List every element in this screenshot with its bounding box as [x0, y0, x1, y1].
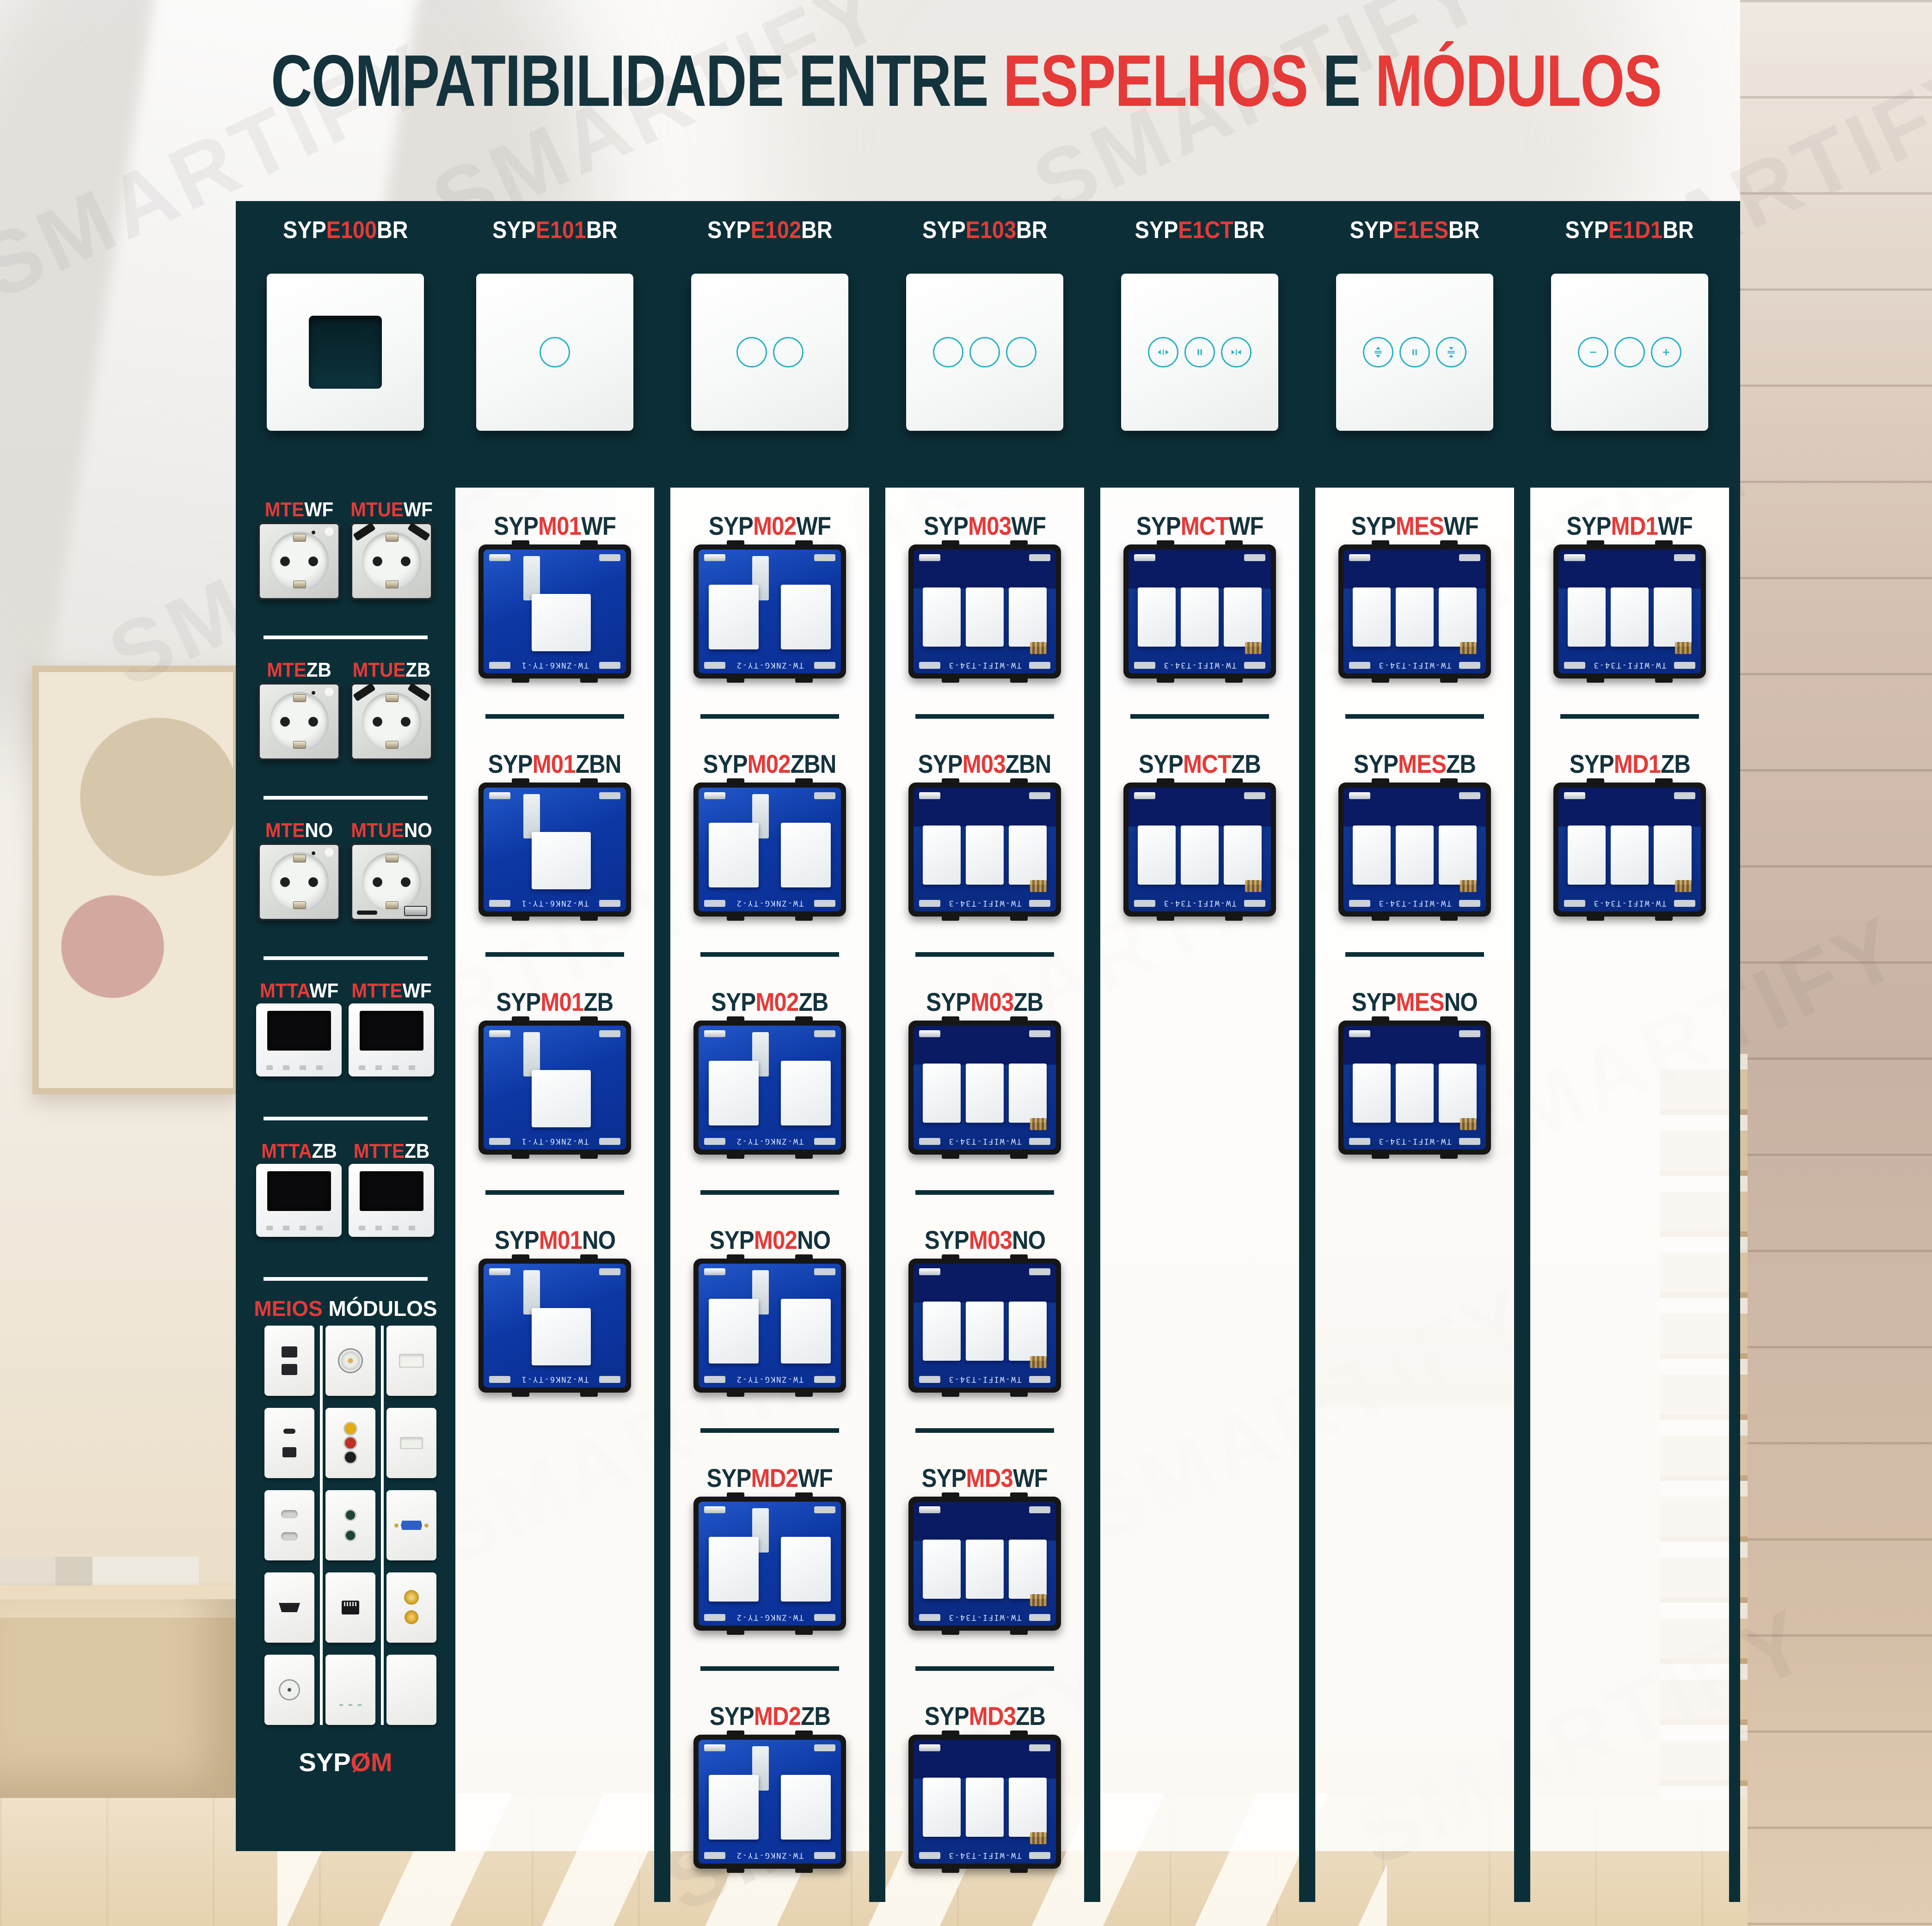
row-divider: [485, 714, 624, 719]
thermostat-image: [349, 1164, 434, 1237]
module-row: SYPMESWF TW-WIFI-T34-3: [1315, 511, 1514, 679]
module-code: MTTAZB: [257, 1140, 342, 1163]
button-pad: [781, 1537, 831, 1602]
module-row: SYPMD1WF TW-WIFI-T34-3: [1530, 511, 1729, 679]
hdmi-icon: [279, 1603, 300, 1612]
blank-port-icon: [400, 1437, 423, 1449]
meios-tile: [325, 1655, 375, 1725]
button-pad: [1009, 1064, 1047, 1123]
header-cell-sype101br: SYPE101BR: [453, 216, 656, 431]
column-separator: [869, 488, 885, 1902]
socket-2pin-icon: [281, 1510, 298, 1541]
module-image: TW-ZNK6-TY-1: [478, 1259, 631, 1393]
module-code: SYPM03ZBN: [918, 749, 1051, 779]
table-right-border: [1729, 488, 1740, 1902]
meios-tile: [264, 1572, 314, 1643]
pcb-print: TW-WIFI-T34-3: [914, 1137, 1056, 1146]
row-divider: [915, 1190, 1054, 1195]
module-row: SYPM02WF TW-ZNKG-TY-2: [670, 511, 869, 679]
pcb-print: TW-WIFI-T34-3: [1129, 660, 1271, 670]
clip-decoration: [489, 1268, 510, 1275]
meios-grid-line: [320, 1326, 323, 1725]
button-pad: [1654, 587, 1692, 647]
clip-decoration: [704, 1268, 725, 1275]
clip-decoration: [704, 1744, 725, 1751]
sideboard-top-photo: [0, 1585, 250, 1599]
socket-usb-image: [350, 522, 433, 600]
touch-circle-icon: [969, 337, 1000, 367]
column-separator: [654, 488, 670, 1902]
clip-decoration: [1349, 1030, 1370, 1037]
poster-canvas: SMARTIFY SMARTIFY SMARTIFY SMARTIFY SMAR…: [0, 0, 1932, 1926]
faceplate-image: [906, 274, 1063, 431]
shutter-close-icon: [1436, 337, 1466, 367]
title-part-red: MÓDULOS: [1375, 40, 1661, 122]
pcb-print: TW-WIFI-T34-3: [914, 1613, 1056, 1622]
row-divider: [915, 1428, 1054, 1433]
pcb-print: TW-WIFI-T34-3: [914, 899, 1056, 908]
button-pad: [1224, 825, 1262, 885]
faceplate-image: [691, 274, 848, 431]
module-code: SYPMCTWF: [1136, 511, 1263, 541]
button-pad: [709, 1775, 759, 1840]
clip-decoration: [1349, 792, 1370, 799]
module-image: TW-ZNKG-TY-2: [693, 1497, 846, 1631]
module-image: TW-WIFI-T34-3: [908, 783, 1061, 917]
button-pad: [923, 1302, 961, 1361]
meios-tile: [264, 1490, 314, 1560]
module-row: SYPMCTWF TW-WIFI-T34-3: [1100, 511, 1299, 679]
sypom-label: SYPØM: [236, 1747, 455, 1777]
title-part-dark: E: [1307, 40, 1375, 122]
row-divider: [1560, 714, 1699, 719]
module-row: SYPMCTZB TW-WIFI-T34-3: [1100, 749, 1299, 917]
pcb-print: TW-ZNK6-TY-1: [484, 1375, 626, 1384]
touch-circle-icon: [1006, 337, 1037, 367]
sat-coax-dual-icon: [404, 1590, 419, 1605]
clip-decoration: [489, 1030, 510, 1037]
module-image: TW-ZNKG-TY-2: [693, 1021, 846, 1155]
module-image: TW-ZNK6-TY-1: [478, 544, 631, 679]
button-pad: [532, 832, 591, 889]
module-code: SYPM02WF: [709, 511, 831, 541]
tv-coax-icon: [279, 1679, 300, 1700]
button-pad: [709, 823, 759, 887]
mirror-code: SYPE1D1BR: [1565, 216, 1694, 244]
module-row: SYPMD1ZB TW-WIFI-T34-3: [1530, 749, 1729, 917]
row-divider: [700, 714, 839, 719]
meios-tile: [325, 1326, 375, 1396]
module-row: SYPMD3WF TW-WIFI-T34-3: [885, 1463, 1084, 1631]
module-image: TW-WIFI-T34-3: [908, 1735, 1061, 1869]
button-pad: [1654, 825, 1692, 885]
column-bg-mct: [1100, 488, 1299, 1851]
module-row: SYPMD3ZB TW-WIFI-T34-3: [885, 1701, 1084, 1869]
pcb-print: TW-ZNKG-TY-2: [699, 1851, 841, 1860]
socket-usb-image: [350, 683, 433, 760]
curtain-close-icon: [1221, 337, 1251, 367]
pcb-print: TW-ZNKG-TY-2: [699, 1137, 841, 1146]
meios-modulos-heading: MEIOS MÓDULOS: [236, 1296, 455, 1321]
button-pad: [1396, 825, 1434, 885]
switch-blank-icon: [337, 1674, 364, 1706]
dimmer-minus-icon: [1578, 337, 1608, 367]
rca-av-icon: [345, 1423, 356, 1434]
module-image: TW-WIFI-T34-3: [1553, 783, 1706, 917]
module-code: SYPM02ZB: [711, 987, 828, 1017]
open-frame-icon: [309, 316, 382, 389]
module-image: TW-WIFI-T34-3: [908, 544, 1061, 679]
module-code: SYPM03NO: [924, 1225, 1045, 1255]
module-image: TW-WIFI-T34-3: [908, 1497, 1061, 1631]
button-pad: [781, 1061, 831, 1125]
module-image: TW-WIFI-T34-3: [1338, 783, 1491, 917]
module-row: SYPM03ZB TW-WIFI-T34-3: [885, 987, 1084, 1155]
module-code: SYPM01WF: [494, 511, 616, 541]
meios-tile: [264, 1326, 314, 1396]
button-pad: [923, 825, 961, 885]
meios-tile: [325, 1572, 375, 1643]
mirror-code: SYPE102BR: [707, 216, 833, 244]
module-row: SYPM02ZB TW-ZNKG-TY-2: [670, 987, 869, 1155]
socket-image: [258, 843, 340, 921]
clip-decoration: [704, 1030, 725, 1037]
column-bg-m01: [455, 488, 654, 1851]
pcb-print: TW-ZNKG-TY-2: [699, 899, 841, 908]
button-pad: [1009, 1302, 1047, 1361]
column-separator: [1299, 488, 1315, 1902]
module-image: TW-ZNKG-TY-2: [693, 783, 846, 917]
clip-decoration: [919, 1268, 940, 1275]
button-pad: [781, 585, 831, 649]
module-image: TW-WIFI-T34-3: [908, 1259, 1061, 1393]
sidebar-divider: [264, 796, 428, 800]
module-code: MTENO: [257, 819, 342, 842]
meios-tile: [386, 1490, 436, 1560]
module-image: TW-WIFI-T34-3: [1123, 783, 1276, 917]
faceplate-image: [1121, 274, 1278, 431]
button-pad: [532, 594, 591, 651]
column-bg-md1: [1530, 488, 1729, 1851]
blank-port-icon: [399, 1354, 424, 1368]
button-pad: [1181, 825, 1219, 885]
pcb-print: TW-ZNKG-TY-2: [699, 660, 841, 670]
pcb-print: TW-WIFI-T34-3: [914, 1851, 1056, 1860]
books-photo: [0, 1557, 199, 1585]
curtain-open-icon: [1148, 337, 1178, 367]
module-code: SYPMESNO: [1352, 987, 1478, 1017]
module-code: SYPMD2ZB: [709, 1701, 830, 1731]
module-image: TW-ZNKG-TY-2: [693, 1735, 846, 1869]
row-divider: [700, 952, 839, 957]
row-divider: [1345, 952, 1484, 957]
faceplate-image: [267, 274, 424, 431]
thermostat-image: [349, 1003, 434, 1076]
module-row: SYPMESZB TW-WIFI-T34-3: [1315, 749, 1514, 917]
module-code: SYPMESZB: [1354, 749, 1476, 779]
button-pad: [966, 1778, 1004, 1837]
module-code: SYPMD3ZB: [924, 1701, 1045, 1731]
module-code: SYPM03WF: [924, 511, 1046, 541]
button-pad: [966, 1064, 1004, 1123]
meios-tile: [386, 1408, 436, 1478]
button-pad: [923, 587, 961, 647]
module-image: TW-WIFI-T34-3: [1338, 544, 1491, 679]
clip-decoration: [704, 554, 725, 561]
module-code: SYPMD2WF: [707, 1463, 833, 1493]
module-code: SYPMD1ZB: [1569, 749, 1690, 779]
meios-tile: [325, 1490, 375, 1560]
module-row: SYPM02ZBN TW-ZNKG-TY-2: [670, 749, 869, 917]
clip-decoration: [1349, 554, 1370, 561]
module-code: MTTEWF: [349, 979, 434, 1003]
button-pad: [1568, 587, 1606, 647]
button-pad: [966, 1540, 1004, 1599]
column-bg-mes: [1315, 488, 1514, 1851]
button-pad: [966, 587, 1004, 647]
faceplate-image: [1336, 274, 1493, 431]
module-code: MTUEZB: [349, 659, 434, 682]
module-image: TW-ZNKG-TY-2: [693, 1259, 846, 1393]
module-image: TW-WIFI-T34-3: [908, 1021, 1061, 1155]
header-cell-sype103br: SYPE103BR: [883, 216, 1086, 431]
module-code: MTUENO: [349, 819, 434, 842]
module-code: SYPM01ZB: [496, 987, 613, 1017]
touch-circle-icon: [933, 337, 963, 367]
faceplate-image: [476, 274, 633, 431]
module-image: TW-ZNKG-TY-2: [693, 544, 846, 679]
blank-icon: [409, 1688, 414, 1692]
page-title: COMPATIBILIDADE ENTRE ESPELHOS E MÓDULOS: [0, 39, 1932, 123]
rj45-icon: [342, 1601, 359, 1614]
module-code: MTEWF: [257, 498, 342, 521]
meios-tile: [386, 1326, 436, 1396]
touch-circle-icon: [1614, 337, 1645, 367]
mirror-code: SYPE1ESBR: [1350, 216, 1480, 244]
meios-tile: [325, 1408, 375, 1478]
button-pad: [1138, 587, 1176, 647]
button-pad: [1009, 587, 1047, 647]
sidebar-divider: [264, 1277, 428, 1281]
mirror-code: SYPE101BR: [492, 216, 618, 244]
module-code: MTTAWF: [257, 979, 342, 1003]
module-code: MTTEZB: [349, 1140, 434, 1163]
clip-decoration: [1564, 792, 1585, 799]
module-image: TW-WIFI-T34-3: [1553, 544, 1706, 679]
button-pad: [1009, 1540, 1047, 1599]
module-code: SYPMCTZB: [1139, 749, 1261, 779]
button-pad: [709, 1537, 759, 1602]
touch-circle-icon: [736, 337, 767, 367]
sidebar-divider: [264, 1117, 428, 1120]
thermostat-image: [256, 1164, 342, 1237]
button-pad: [923, 1540, 961, 1599]
row-divider: [700, 1428, 839, 1433]
pcb-print: TW-ZNK6-TY-1: [484, 660, 626, 670]
header-cell-sype100br: SYPE100BR: [244, 216, 447, 431]
module-code: SYPM01ZBN: [488, 749, 621, 779]
button-pad: [1568, 825, 1606, 885]
module-image: TW-WIFI-T34-3: [1123, 544, 1276, 679]
audio-jack-dual-icon: [346, 1510, 355, 1520]
button-pad: [709, 585, 759, 649]
mirror-code: SYPE100BR: [283, 216, 408, 244]
button-pad: [1439, 825, 1477, 885]
pcb-print: TW-ZNK6-TY-1: [484, 1137, 626, 1146]
pcb-print: TW-WIFI-T34-3: [1558, 660, 1701, 670]
title-part-red: ESPELHOS: [1003, 40, 1308, 122]
meios-tile: [386, 1655, 436, 1725]
clip-decoration: [1134, 554, 1155, 561]
column-separator: [1084, 488, 1100, 1902]
picture-frame-photo: [32, 666, 239, 1094]
module-row: SYPM01ZBN TW-ZNK6-TY-1: [455, 749, 654, 917]
clip-decoration: [919, 554, 940, 561]
touch-circle-icon: [540, 337, 570, 367]
socket-usb-image: [350, 843, 433, 921]
usb-c-and-a-icon: [282, 1429, 296, 1457]
button-pad: [1353, 825, 1391, 885]
clip-decoration: [1564, 554, 1585, 561]
module-code: SYPM02ZBN: [703, 749, 836, 779]
mirror-code: SYPE1CTBR: [1135, 216, 1265, 244]
module-row: SYPM01ZB TW-ZNK6-TY-1: [455, 987, 654, 1155]
module-code: SYPM02NO: [709, 1225, 830, 1255]
module-row: SYPM03NO TW-WIFI-T34-3: [885, 1225, 1084, 1393]
module-code: SYPM01NO: [494, 1225, 615, 1255]
header-cell-sype1ctbr: SYPE1CTBR: [1098, 216, 1301, 431]
socket-image: [258, 522, 340, 600]
column-bg-m02: [670, 488, 869, 1851]
button-pad: [1439, 587, 1477, 647]
column-separator: [1514, 488, 1530, 1902]
button-pad: [923, 1064, 961, 1123]
mirror-code: SYPE103BR: [922, 216, 1048, 244]
button-pad: [781, 1299, 831, 1363]
button-pad: [781, 823, 831, 887]
button-pad: [781, 1775, 831, 1840]
module-code: SYPM03ZB: [926, 987, 1043, 1017]
socket-image: [258, 683, 340, 760]
column-bg-m03: [885, 488, 1084, 1851]
meios-tile: [264, 1408, 314, 1478]
button-pad: [532, 1308, 591, 1365]
clip-decoration: [919, 1744, 940, 1751]
button-pad: [1181, 587, 1219, 647]
vga-icon: [394, 1521, 429, 1530]
module-image: TW-WIFI-T34-3: [1338, 1021, 1491, 1155]
row-divider: [915, 952, 1054, 957]
meios-tile: [386, 1572, 436, 1643]
row-divider: [915, 1666, 1054, 1671]
button-pad: [1009, 825, 1047, 885]
button-pad: [1138, 825, 1176, 885]
sidebar-divider: [264, 636, 428, 639]
row-divider: [915, 714, 1054, 719]
button-pad: [1439, 1064, 1477, 1123]
pcb-print: TW-WIFI-T34-3: [1343, 899, 1486, 908]
module-row: SYPM01NO TW-ZNK6-TY-1: [455, 1225, 654, 1393]
button-pad: [1396, 587, 1434, 647]
module-code: SYPMESWF: [1351, 511, 1478, 541]
module-code: SYPMD1WF: [1567, 511, 1693, 541]
button-pad: [1353, 587, 1391, 647]
module-code: MTEZB: [257, 659, 342, 682]
row-divider: [1345, 714, 1484, 719]
row-divider: [1130, 714, 1269, 719]
header-cell-sype102br: SYPE102BR: [668, 216, 871, 431]
clip-decoration: [704, 1506, 725, 1513]
header-cell-sype1esbr: SYPE1ESBR: [1313, 216, 1516, 431]
thermostat-image: [256, 1003, 342, 1076]
sidebar-divider: [264, 956, 428, 960]
pcb-print: TW-WIFI-T34-3: [914, 1375, 1056, 1384]
button-pad: [1396, 1064, 1434, 1123]
clip-decoration: [489, 792, 510, 799]
module-row: SYPM03ZBN TW-WIFI-T34-3: [885, 749, 1084, 917]
module-row: SYPM01WF TW-ZNK6-TY-1: [455, 511, 654, 679]
row-divider: [485, 1190, 624, 1195]
module-row: SYPM02NO TW-ZNKG-TY-2: [670, 1225, 869, 1393]
row-divider: [700, 1666, 839, 1671]
row-divider: [700, 1190, 839, 1195]
module-image: TW-ZNK6-TY-1: [478, 783, 631, 917]
meios-tile: [264, 1655, 314, 1725]
clip-decoration: [919, 792, 940, 799]
clip-decoration: [1134, 792, 1155, 799]
pcb-print: TW-ZNKG-TY-2: [699, 1613, 841, 1622]
button-pad: [1009, 1778, 1047, 1837]
usb-dual-icon: [282, 1346, 297, 1357]
pcb-print: TW-WIFI-T34-3: [1129, 899, 1271, 908]
button-pad: [1611, 825, 1649, 885]
pcb-print: TW-ZNK6-TY-1: [484, 899, 626, 908]
module-row: SYPMESNO TW-WIFI-T34-3: [1315, 987, 1514, 1155]
touch-circle-icon: [773, 337, 803, 367]
shutter-open-icon: [1363, 337, 1393, 367]
pause-icon: [1184, 337, 1215, 367]
pcb-print: TW-ZNKG-TY-2: [699, 1375, 841, 1384]
header-cell-sype1d1br: SYPE1D1BR: [1528, 216, 1731, 431]
pcb-print: TW-WIFI-T34-3: [914, 660, 1056, 670]
faceplate-image: [1551, 274, 1708, 431]
button-pad: [1611, 587, 1649, 647]
pause-icon: [1399, 337, 1430, 367]
clip-decoration: [919, 1030, 940, 1037]
button-pad: [966, 1302, 1004, 1361]
dimmer-plus-icon: [1651, 337, 1681, 367]
module-code: SYPMD3WF: [922, 1463, 1048, 1493]
clip-decoration: [704, 792, 725, 799]
button-pad: [709, 1061, 759, 1125]
pcb-print: TW-WIFI-T34-3: [1558, 899, 1701, 908]
button-pad: [532, 1070, 591, 1127]
module-row: SYPMD2WF TW-ZNKG-TY-2: [670, 1463, 869, 1631]
clip-decoration: [489, 554, 510, 561]
row-divider: [485, 952, 624, 957]
module-row: SYPM03WF TW-WIFI-T34-3: [885, 511, 1084, 679]
meios-grid-line: [381, 1326, 384, 1725]
speaker-icon: [338, 1348, 363, 1373]
sideboard-photo: [0, 1599, 236, 1798]
button-pad: [923, 1778, 961, 1837]
module-image: TW-ZNK6-TY-1: [478, 1021, 631, 1155]
button-pad: [1353, 1064, 1391, 1123]
module-code: MTUEWF: [349, 498, 434, 521]
pcb-print: TW-WIFI-T34-3: [1343, 660, 1486, 670]
clip-decoration: [919, 1506, 940, 1513]
button-pad: [1224, 587, 1262, 647]
